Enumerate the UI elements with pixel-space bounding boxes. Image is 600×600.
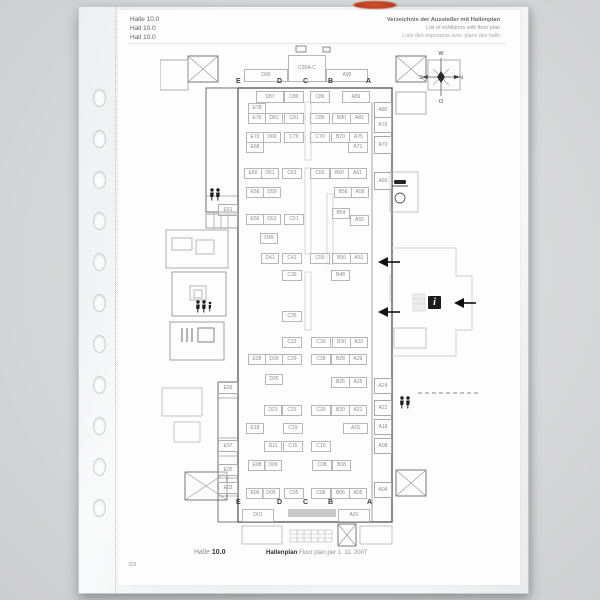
booth-C06: C06	[311, 488, 331, 499]
column-letter-D: D	[277, 78, 282, 85]
booth-B06: B06	[331, 488, 350, 499]
subtitle-de: Verzeichnis der Aussteller mit Hallenpla…	[387, 16, 500, 24]
booth-E03: E03	[218, 482, 238, 494]
booth-D25: D25	[265, 374, 283, 385]
booth-E51: E51	[218, 204, 238, 216]
booth-C19: C19	[283, 423, 303, 434]
booth-D21: D21	[264, 405, 282, 416]
booth-B30: B30	[332, 337, 351, 348]
punch-hole	[93, 458, 106, 476]
booth-A21: A21	[349, 405, 367, 416]
booth-C29: C29	[282, 354, 302, 365]
booth-A04: A04	[374, 482, 392, 498]
booth-B50: B50	[332, 253, 351, 264]
punch-hole	[93, 294, 106, 312]
page-number: 329	[128, 562, 136, 568]
booth-D51: D51	[263, 214, 281, 225]
punch-hole	[93, 253, 106, 271]
booth-A58: A58	[351, 187, 369, 198]
booth-E58: E58	[246, 187, 264, 198]
red-edge-mark	[353, 1, 397, 9]
booth-B54: B54	[332, 208, 350, 219]
booth-D49: D49	[260, 233, 278, 244]
booth-C60: C60	[310, 168, 330, 179]
booth-A81: A81	[350, 113, 369, 124]
booth-E60: E60	[244, 168, 262, 179]
hall-title-fr: Hall 10.0	[130, 33, 159, 42]
booth-B20: B20	[331, 405, 350, 416]
booth-D61: D61	[261, 168, 279, 179]
booth-C10: C10	[311, 441, 331, 452]
column-letter-D: D	[277, 499, 282, 506]
booth-D81: D81	[265, 113, 283, 124]
punch-hole	[93, 89, 106, 107]
booth-E28: E28	[248, 354, 266, 365]
booth-A31: A31	[350, 337, 368, 348]
punch-hole	[93, 499, 106, 517]
booth-A25: A25	[349, 377, 367, 388]
booth-A01: A01	[338, 509, 370, 522]
booth-E18: E18	[246, 423, 264, 434]
booth-A60: A60	[374, 172, 392, 190]
hall-caption-label: Halle	[194, 549, 210, 556]
booth-B48: B48	[331, 270, 350, 281]
booth-B26: B26	[331, 377, 350, 388]
floor-plan-page: Halle 10.0 Hall 10.0 Hall 10.0 Verzeichn…	[118, 10, 520, 585]
hall-caption: Halle 10.0	[194, 549, 226, 556]
booth-C21: C21	[282, 405, 302, 416]
booth-A22: A22	[374, 400, 392, 416]
booth-B80: B80	[332, 113, 351, 124]
booth-D69: D69	[263, 132, 281, 143]
booth-A89: A89	[342, 91, 370, 103]
booth-E68: E68	[246, 142, 264, 153]
booth-C79: C79	[284, 132, 304, 143]
booth-C89: C89	[284, 91, 304, 103]
booth-D05: D05	[262, 488, 280, 499]
hall-caption-number: 10.0	[212, 549, 226, 556]
column-letter-B: B	[328, 499, 333, 506]
punch-hole	[93, 130, 106, 148]
booth-A70: A70	[374, 136, 392, 154]
booth-B08: B08	[332, 460, 351, 471]
booth-A61: A61	[348, 168, 367, 179]
booth-C86: C86	[310, 91, 330, 103]
punch-hole	[93, 171, 106, 189]
booth-A55: A55	[350, 215, 369, 226]
booth-A05: A05	[349, 488, 367, 499]
booth-A71: A71	[348, 142, 368, 153]
booth-A29: A29	[349, 354, 367, 365]
booth-E07: E07	[218, 440, 238, 452]
booth-C08: C08	[312, 460, 332, 471]
punch-hole	[93, 417, 106, 435]
plan-caption-label: Hallenplan	[266, 549, 297, 556]
booth-A24: A24	[374, 378, 392, 394]
hall-title-en: Hall 10.0	[130, 24, 159, 33]
floor-plan: i D90C90A-CA90D87C89C86A89E78E76D81C81C8…	[160, 44, 490, 558]
booth-C28: C28	[311, 354, 331, 365]
column-letter-E: E	[236, 78, 241, 85]
booth-A76: A76	[374, 117, 392, 133]
booth-C30: C30	[311, 337, 331, 348]
booth-A15: A15	[343, 423, 368, 434]
booth-C31: C31	[282, 337, 302, 348]
subtitle-en: List of exhibitors with floor plan	[387, 24, 500, 32]
booth-D41: D41	[261, 253, 279, 264]
booth-D59: D59	[263, 187, 281, 198]
booth-D29: D29	[265, 354, 283, 365]
plan-caption-date: Floor plan per 1. 11. 2007	[299, 550, 367, 556]
column-letter-E: E	[236, 499, 241, 506]
column-letter-A: A	[367, 499, 372, 506]
booth-C15: C15	[283, 441, 303, 452]
booth-A08: A08	[374, 438, 392, 454]
column-letter-B: B	[328, 78, 333, 85]
booth-A51: A51	[350, 253, 368, 264]
subtitle-fr: Liste des exposants avec plans des halls	[387, 32, 500, 40]
information-icon: i	[428, 296, 441, 309]
booth-D87: D87	[256, 91, 284, 103]
punch-hole	[93, 335, 106, 353]
booth-C50: C50	[310, 253, 330, 264]
page-title: Halle 10.0 Hall 10.0 Hall 10.0	[130, 15, 159, 42]
booth-C39: C39	[282, 270, 302, 281]
punch-hole	[93, 376, 106, 394]
plan-caption: Hallenplan Floor plan per 1. 11. 2007	[266, 549, 367, 556]
column-letter-A: A	[366, 78, 371, 85]
sleeve-seam	[115, 7, 116, 593]
column-letter-C: C	[303, 499, 308, 506]
booth-E09: E09	[218, 382, 238, 394]
booth-E05: E05	[218, 464, 238, 476]
booth-C05: C05	[284, 488, 304, 499]
page-subtitle: Verzeichnis der Aussteller mit Hallenpla…	[387, 16, 500, 40]
booth-B58: B58	[334, 187, 352, 198]
booth-C70: C70	[310, 132, 330, 143]
booth-E76: E76	[248, 113, 266, 124]
booth-C61: C61	[282, 168, 302, 179]
booth-C80: C80	[310, 113, 330, 124]
column-letter-C: C	[303, 78, 308, 85]
booth-B28: B28	[331, 354, 350, 365]
hall-title-de: Halle 10.0	[130, 15, 159, 24]
booth-A80: A80	[374, 102, 392, 118]
booth-D09: D09	[264, 460, 282, 471]
booth-C20: C20	[311, 405, 331, 416]
booth-A18: A18	[374, 419, 392, 435]
booth-C51: C51	[284, 214, 304, 225]
booth-B60: B60	[330, 168, 349, 179]
punch-hole	[93, 212, 106, 230]
photo-of-sheet-protector: Halle 10.0 Hall 10.0 Hall 10.0 Verzeichn…	[0, 0, 600, 600]
booth-C35: C35	[282, 311, 302, 322]
booth-C41: C41	[282, 253, 302, 264]
booth-D01: D01	[242, 509, 274, 522]
booth-D11: D11	[264, 441, 282, 452]
booth-C81: C81	[284, 113, 304, 124]
booth-E50: E50	[246, 214, 264, 225]
